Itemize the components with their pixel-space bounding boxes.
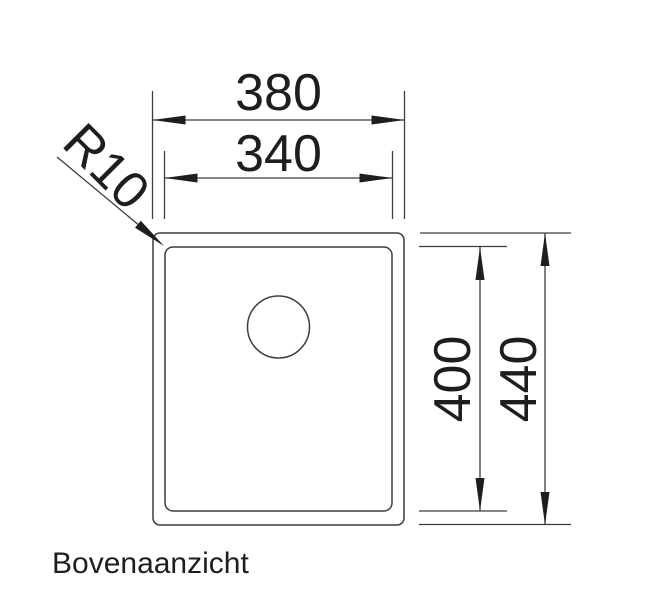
dimension-label-inner-width: 340	[235, 125, 322, 183]
arrowhead-inner-width-left	[165, 174, 198, 183]
drawing-canvas: 380 340 400 440 R10 Bovenaanzicht	[0, 0, 652, 599]
sink-outline-group	[153, 233, 404, 525]
dimension-label-inner-height: 400	[424, 336, 482, 423]
view-label: Bovenaanzicht	[52, 547, 249, 580]
sink-top-view-diagram: 380 340 400 440 R10 Bovenaanzicht	[0, 0, 652, 599]
dimension-label-outer-height: 440	[490, 336, 548, 423]
dimension-label-outer-width: 380	[235, 64, 322, 122]
arrowhead-inner-height-top	[476, 247, 485, 280]
sink-outer-outline	[153, 233, 404, 525]
arrowhead-outer-height-bottom	[541, 492, 550, 525]
arrowhead-outer-width-left	[153, 116, 186, 125]
arrowhead-inner-width-right	[360, 174, 393, 183]
arrowhead-outer-width-right	[372, 116, 405, 125]
arrowhead-inner-height-bottom	[476, 478, 485, 511]
dimension-label-corner-radius: R10	[52, 113, 160, 221]
drain-hole	[248, 296, 310, 358]
arrowhead-outer-height-top	[541, 233, 550, 266]
sink-bowl-outline	[165, 247, 392, 511]
dimension-arrowheads	[135, 116, 550, 526]
